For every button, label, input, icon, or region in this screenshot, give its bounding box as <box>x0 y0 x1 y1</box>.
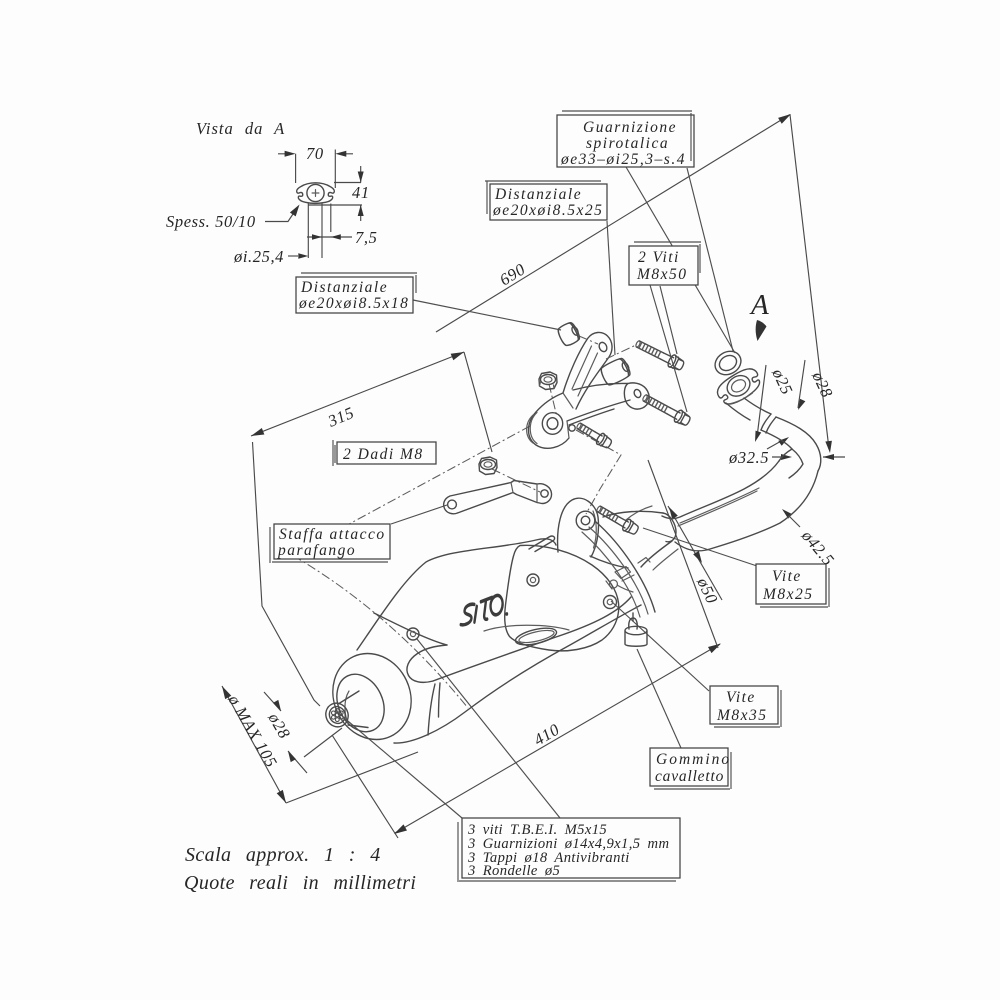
svg-text:parafango: parafango <box>277 542 356 559</box>
svg-text:Gommino: Gommino <box>656 751 731 768</box>
svg-text:Staffa attacco: Staffa attacco <box>279 526 386 543</box>
svg-text:M8x35: M8x35 <box>716 707 768 724</box>
svg-text:3 Rondelle ø5: 3 Rondelle ø5 <box>467 863 560 879</box>
svg-text:Guarnizione: Guarnizione <box>583 119 677 136</box>
svg-text:Distanziale: Distanziale <box>494 186 582 203</box>
svg-text:Quote reali in millimetri: Quote reali in millimetri <box>184 872 416 894</box>
svg-text:Vite: Vite <box>726 689 756 706</box>
svg-text:M8x25: M8x25 <box>762 586 814 603</box>
svg-text:70: 70 <box>306 144 324 163</box>
svg-text:cavalletto: cavalletto <box>655 768 724 785</box>
svg-text:Vite: Vite <box>772 568 802 585</box>
svg-text:ø32.5: ø32.5 <box>728 448 769 467</box>
svg-text:Distanziale: Distanziale <box>300 279 388 296</box>
svg-text:41: 41 <box>352 183 370 202</box>
svg-text:Spess. 50/10: Spess. 50/10 <box>166 212 256 231</box>
svg-text:Vista da A: Vista da A <box>196 119 285 138</box>
svg-text:A: A <box>749 289 770 321</box>
svg-text:2 Viti: 2 Viti <box>638 249 680 266</box>
svg-text:Scala approx. 1 : 4: Scala approx. 1 : 4 <box>185 844 381 866</box>
svg-text:7,5: 7,5 <box>355 228 377 247</box>
svg-text:M8x50: M8x50 <box>636 266 688 283</box>
svg-text:øe33–øi25,3–s.4: øe33–øi25,3–s.4 <box>560 151 686 168</box>
svg-text:2 Dadi M8: 2 Dadi M8 <box>343 446 424 463</box>
svg-text:spirotalica: spirotalica <box>586 135 669 152</box>
svg-text:øe20xøi8.5x18: øe20xøi8.5x18 <box>298 295 409 312</box>
svg-text:øi.25,4: øi.25,4 <box>233 247 284 266</box>
svg-text:øe20xøi8.5x25: øe20xøi8.5x25 <box>492 202 603 219</box>
